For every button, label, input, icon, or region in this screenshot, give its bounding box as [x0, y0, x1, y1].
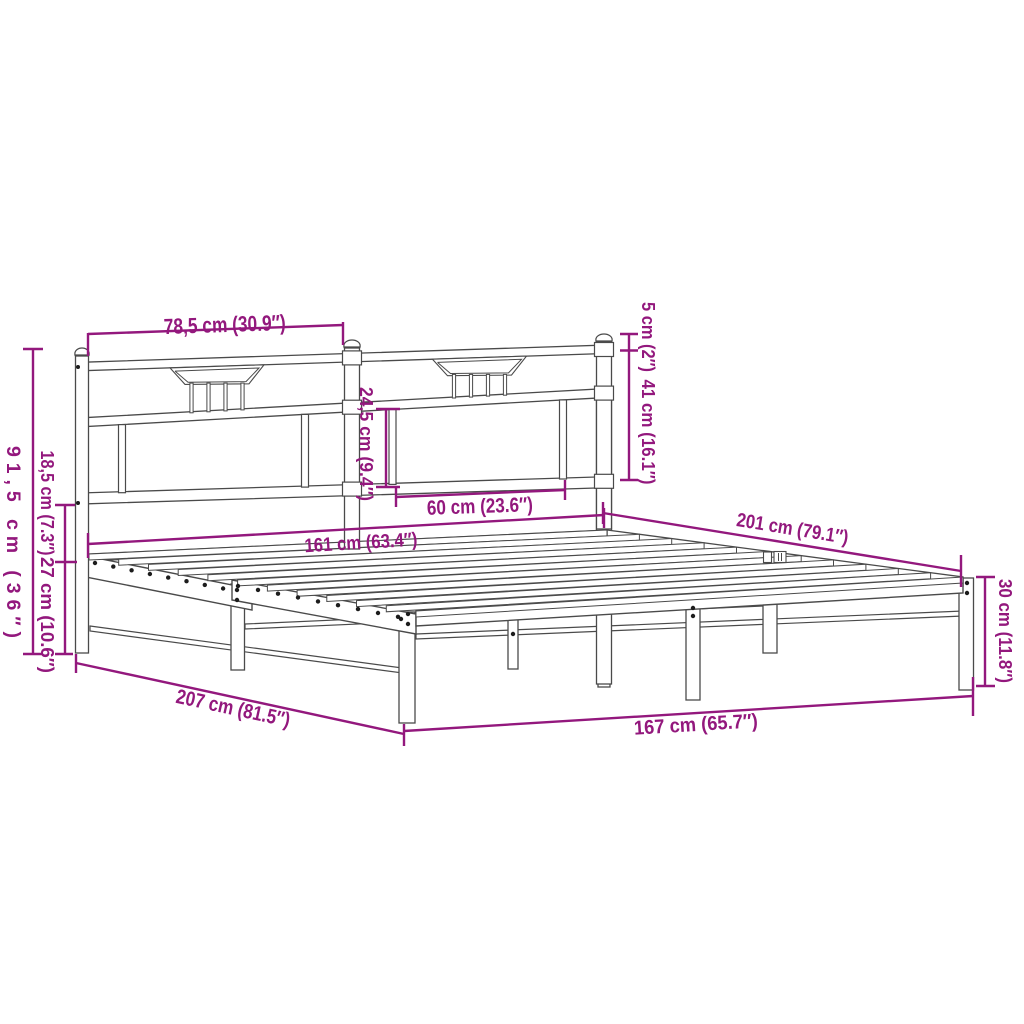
svg-text:30 cm (11.8″): 30 cm (11.8″) [995, 579, 1016, 683]
svg-text:27 cm (10.6″): 27 cm (10.6″) [37, 557, 58, 673]
svg-text:60 cm (23.6″): 60 cm (23.6″) [427, 493, 534, 520]
svg-text:24,5 cm (9.4″): 24,5 cm (9.4″) [356, 387, 377, 501]
svg-text:41 cm (16.1″): 41 cm (16.1″) [638, 380, 659, 485]
svg-text:18,5 cm (7.3″): 18,5 cm (7.3″) [37, 451, 58, 556]
svg-text:5 cm (2″): 5 cm (2″) [638, 302, 659, 372]
svg-text:78,5 cm (30.9″): 78,5 cm (30.9″) [163, 310, 286, 339]
